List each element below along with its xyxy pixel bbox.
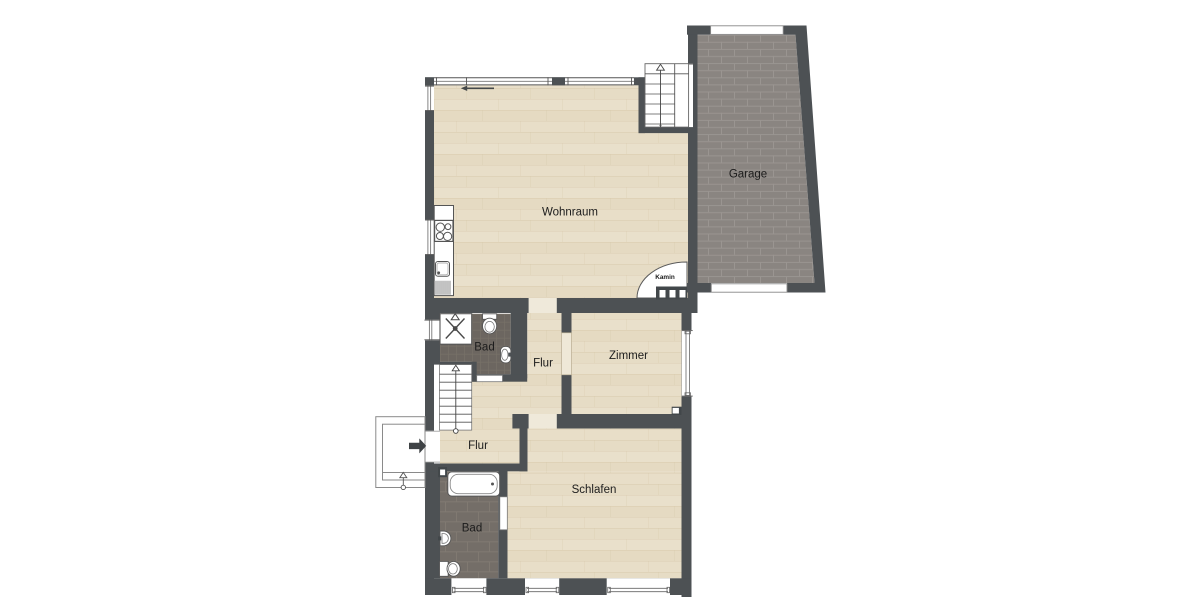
svg-text:Kamin: Kamin [655, 274, 675, 281]
svg-text:Wohnraum: Wohnraum [542, 207, 598, 219]
svg-text:Flur: Flur [533, 357, 553, 369]
svg-text:Garage: Garage [729, 169, 767, 181]
svg-text:Bad: Bad [462, 523, 482, 535]
svg-text:Bad: Bad [474, 341, 494, 353]
svg-text:Zimmer: Zimmer [609, 350, 648, 362]
svg-text:Schlafen: Schlafen [572, 484, 617, 496]
svg-text:Flur: Flur [468, 440, 488, 452]
